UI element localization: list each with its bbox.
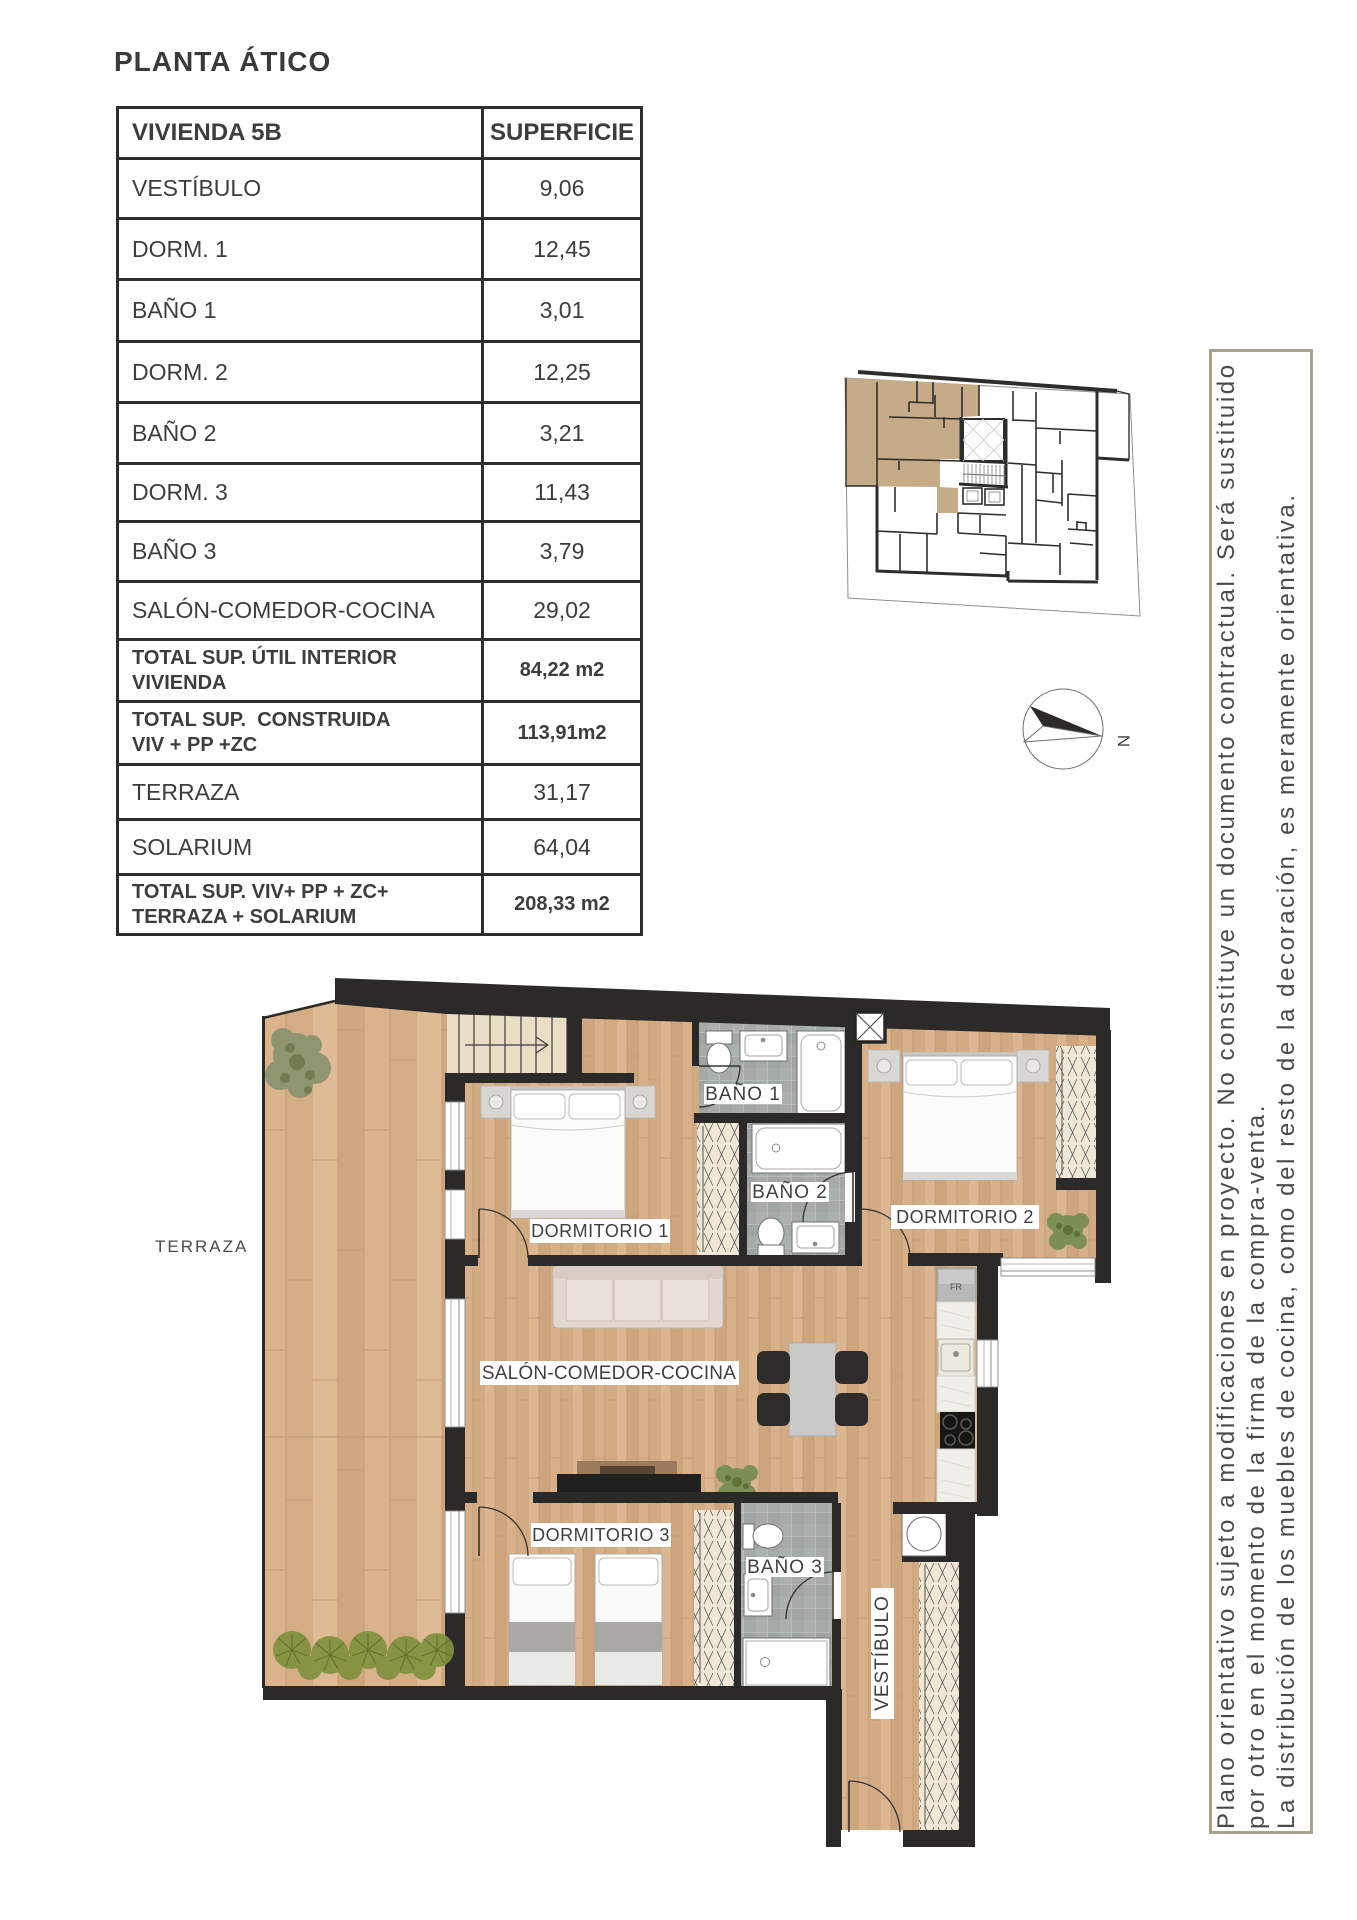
svg-text:DORMITORIO 2: DORMITORIO 2	[896, 1207, 1034, 1227]
svg-text:FR: FR	[950, 1282, 962, 1292]
svg-text:DORMITORIO 1: DORMITORIO 1	[531, 1221, 669, 1241]
svg-text:VESTÍBULO: VESTÍBULO	[872, 1595, 893, 1711]
svg-text:BAÑO 3: BAÑO 3	[747, 1556, 823, 1578]
svg-text:SALÓN-COMEDOR-COCINA: SALÓN-COMEDOR-COCINA	[482, 1362, 736, 1384]
svg-text:BAÑO 1: BAÑO 1	[705, 1083, 781, 1105]
svg-text:BAÑO 2: BAÑO 2	[752, 1181, 828, 1203]
svg-text:N: N	[1114, 735, 1133, 747]
svg-text:TERRAZA: TERRAZA	[155, 1237, 248, 1256]
svg-text:DORMITORIO 3: DORMITORIO 3	[532, 1525, 670, 1545]
